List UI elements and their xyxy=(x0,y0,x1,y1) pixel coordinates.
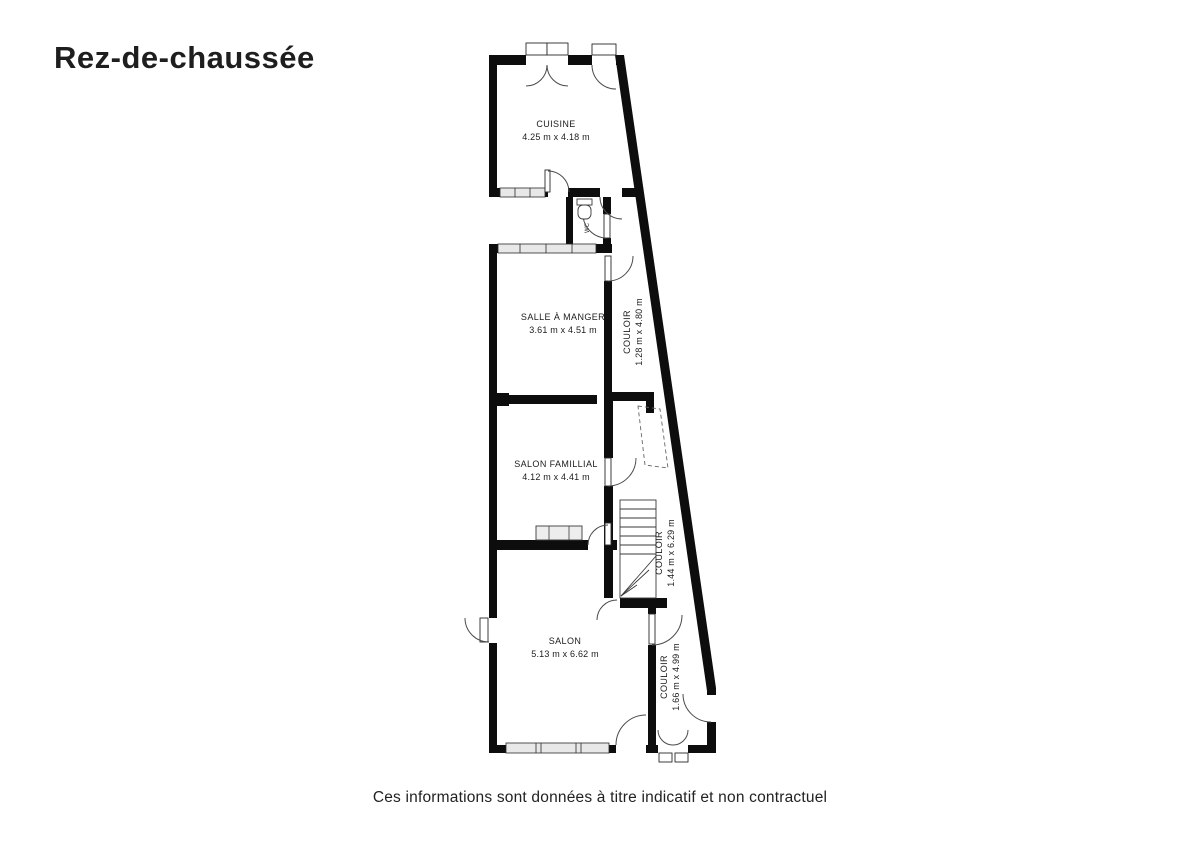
dashed-area xyxy=(638,406,668,468)
room-salon-familial: SALON FAMILLIAL 4.12 m x 4.41 m xyxy=(514,459,598,482)
windows xyxy=(498,188,609,753)
room-couloir-3: COULOIR 1.66 m x 4.99 m xyxy=(659,643,681,711)
room-dimensions: 5.13 m x 6.62 m xyxy=(531,649,599,659)
toilet-icon xyxy=(578,205,591,219)
room-dimensions: 4.12 m x 4.41 m xyxy=(522,472,590,482)
window xyxy=(498,244,596,253)
room-dimensions: 1.28 m x 4.80 m xyxy=(634,298,644,366)
walls xyxy=(489,55,716,753)
room-cuisine: CUISINE 4.25 m x 4.18 m xyxy=(522,119,590,142)
room-label: SALON FAMILLIAL xyxy=(514,459,598,469)
room-label: COULOIR xyxy=(622,310,632,354)
room-couloir-2: COULOIR 1.44 m x 6.29 m xyxy=(654,519,676,587)
room-couloir-1: COULOIR 1.28 m x 4.80 m xyxy=(622,298,644,366)
room-label: SALLE À MANGER xyxy=(521,312,605,322)
room-salle-a-manger: SALLE À MANGER 3.61 m x 4.51 m xyxy=(521,312,605,335)
room-dimensions: 3.61 m x 4.51 m xyxy=(529,325,597,335)
toilet-icon xyxy=(577,199,592,205)
room-labels: CUISINE 4.25 m x 4.18 m SALLE À MANGER 3… xyxy=(514,119,681,711)
room-label: COULOIR xyxy=(659,655,669,699)
footer-disclaimer: Ces informations sont données à titre in… xyxy=(0,789,1200,807)
room-wc: WC xyxy=(585,222,591,233)
floor-plan-svg: CUISINE 4.25 m x 4.18 m SALLE À MANGER 3… xyxy=(0,0,1200,849)
window xyxy=(500,188,545,197)
fireplace xyxy=(536,526,582,540)
room-dimensions: 1.44 m x 6.29 m xyxy=(666,519,676,587)
room-salon: SALON 5.13 m x 6.62 m xyxy=(531,636,599,659)
room-dimensions: 4.25 m x 4.18 m xyxy=(522,132,590,142)
room-label: SALON xyxy=(549,636,582,646)
room-label: WC xyxy=(585,222,591,233)
staircase xyxy=(620,500,656,598)
room-dimensions: 1.66 m x 4.99 m xyxy=(671,643,681,711)
window-dividers xyxy=(515,188,581,753)
room-label: COULOIR xyxy=(654,531,664,575)
room-label: CUISINE xyxy=(536,119,575,129)
window xyxy=(506,743,609,753)
